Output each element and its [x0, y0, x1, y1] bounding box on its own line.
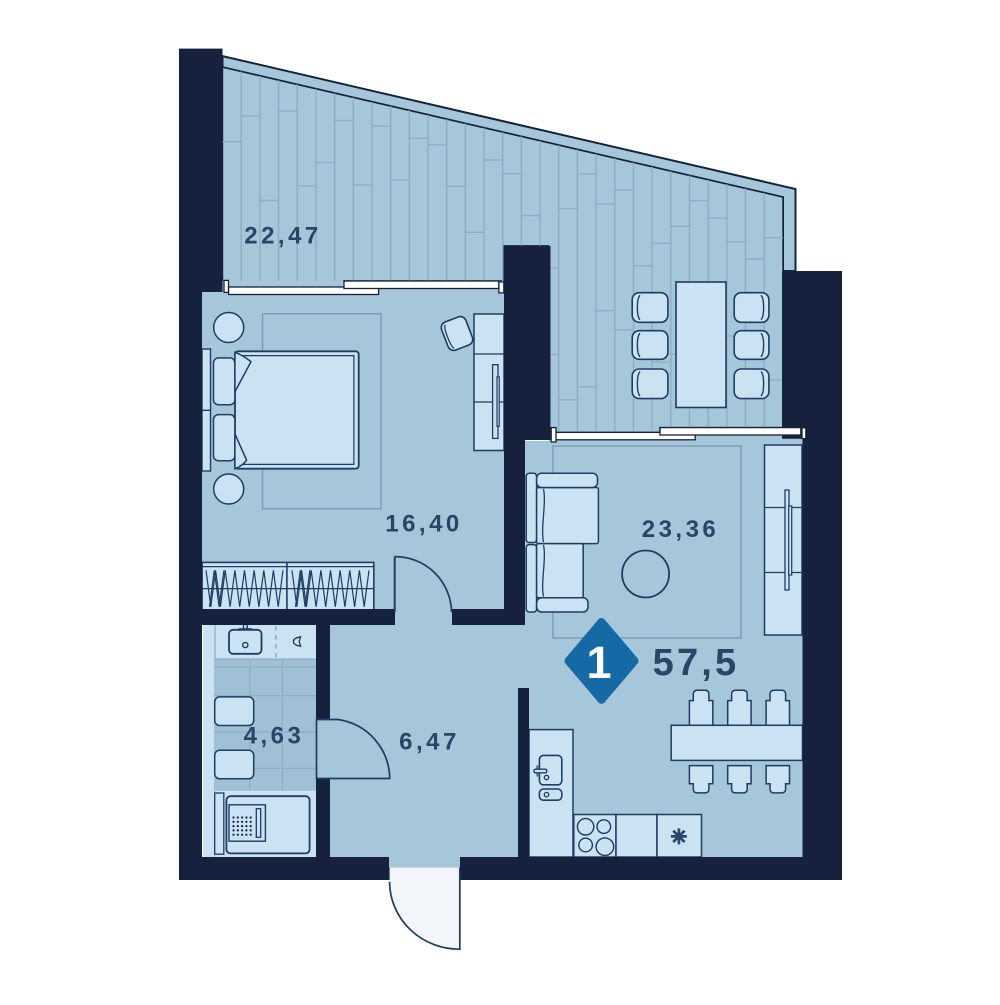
svg-text:16,40: 16,40 [385, 511, 463, 538]
svg-text:57,5: 57,5 [653, 642, 740, 684]
svg-text:1: 1 [586, 637, 611, 688]
svg-text:22,47: 22,47 [244, 223, 322, 250]
svg-text:6,47: 6,47 [399, 729, 460, 756]
svg-text:23,36: 23,36 [642, 516, 720, 543]
svg-text:4,63: 4,63 [244, 723, 305, 750]
